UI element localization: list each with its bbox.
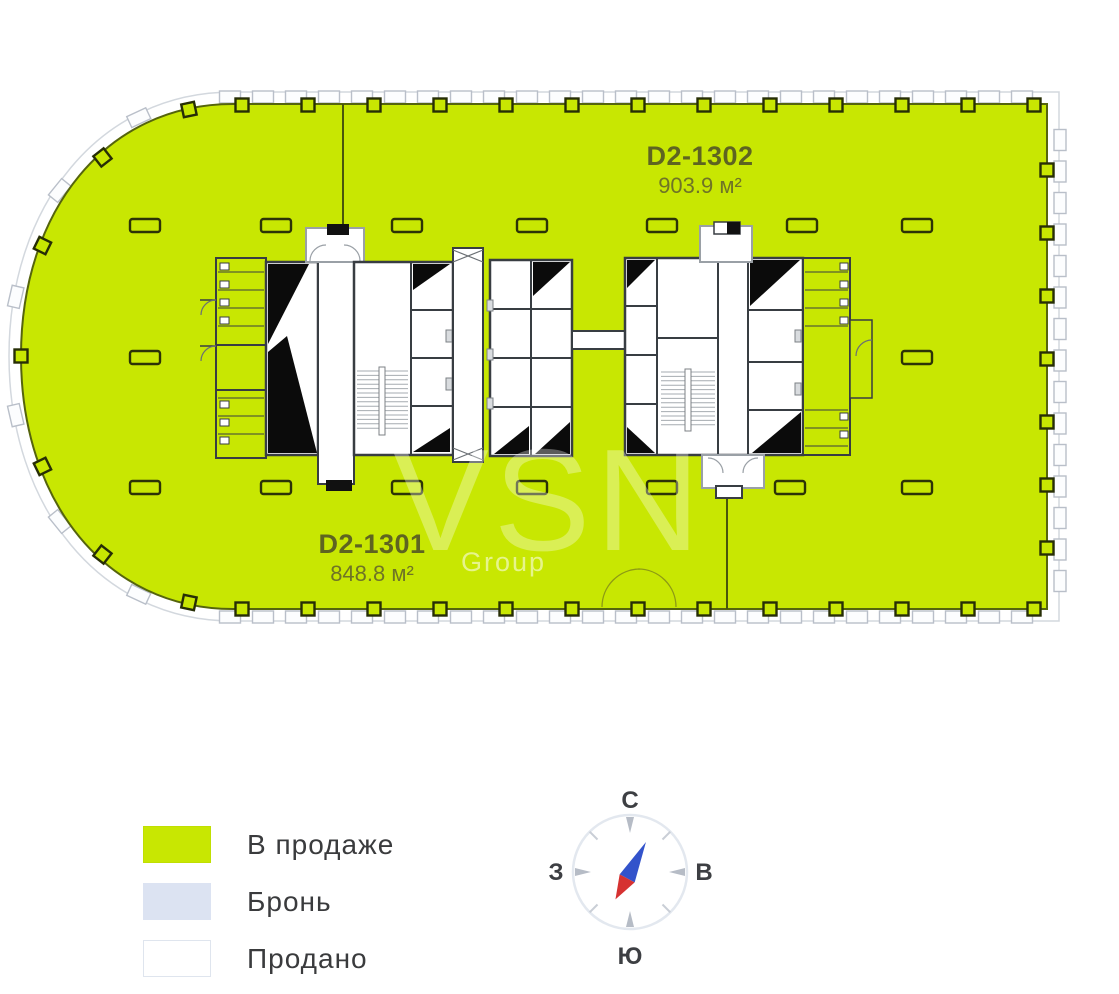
legend-label: Продано <box>247 943 368 975</box>
legend-swatch-reserved <box>143 883 211 920</box>
legend-item-reserved: Бронь <box>143 883 394 920</box>
unit-id: D2-1301 <box>262 529 482 560</box>
unit-area: 848.8 м² <box>262 561 482 587</box>
compass-north-label: С <box>621 787 638 814</box>
legend-item-available: В продаже <box>143 826 394 863</box>
legend-swatch-sold <box>143 940 211 977</box>
legend-swatch-available <box>143 826 211 863</box>
unit-area: 903.9 м² <box>590 173 810 199</box>
compass-south-label: Ю <box>618 943 643 970</box>
floor-plan-page: VSN Group D2-1302 903.9 м² D2-1301 848.8… <box>0 0 1119 994</box>
unit-id: D2-1302 <box>590 141 810 172</box>
legend-item-sold: Продано <box>143 940 394 977</box>
unit-d2-1301[interactable]: D2-1301 848.8 м² <box>262 529 482 587</box>
compass: С З В Ю <box>539 778 721 974</box>
compass-west-label: З <box>548 859 563 886</box>
floor-plan-drawing <box>0 0 1119 700</box>
compass-east-label: В <box>695 859 712 886</box>
legend: В продаже Бронь Продано <box>143 826 394 977</box>
legend-label: Бронь <box>247 886 332 918</box>
unit-d2-1302[interactable]: D2-1302 903.9 м² <box>590 141 810 199</box>
legend-label: В продаже <box>247 829 394 861</box>
